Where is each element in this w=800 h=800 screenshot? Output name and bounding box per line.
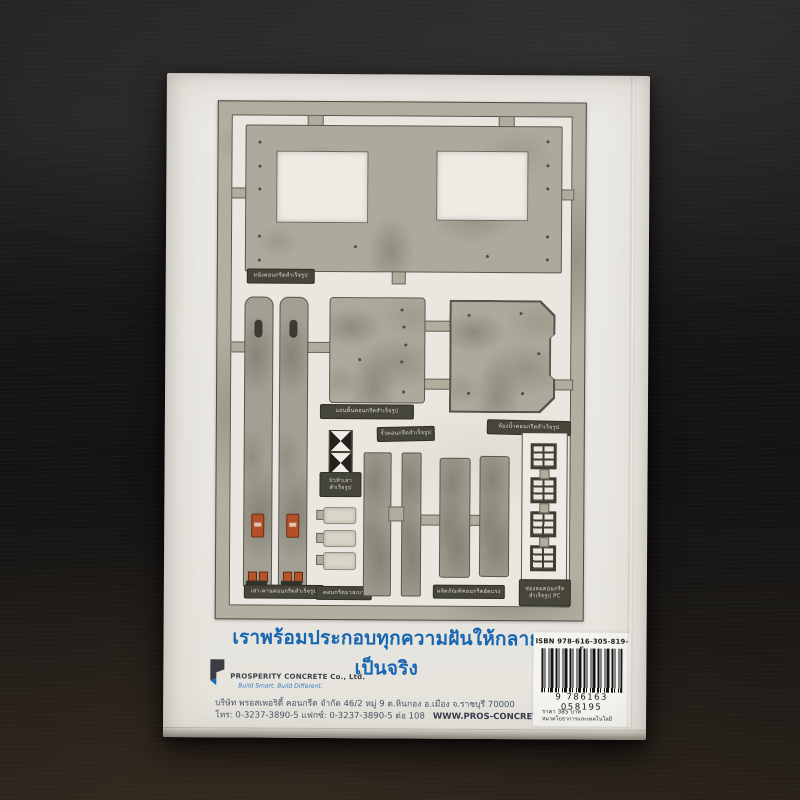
lightweight-block [323,507,356,524]
sprue-tab [388,506,404,521]
isbn-box: ISBN 978-616-305-819-5 9 786163 058195 ร… [533,632,631,727]
precast-floor-slab [329,297,426,404]
column-cap-piece [329,430,353,452]
vent-block [530,545,556,571]
vent-block [531,443,557,469]
precast-bathroom-panel [449,300,556,414]
company-name: PROSPERITY CONCRETE Co., Ltd. [230,672,365,681]
sprue-tab [423,379,451,390]
papercraft-sprue-frame: ผนังคอนกรีตสำเร็จรูป เสา-คานคอนกรีตสำเร็… [215,100,587,621]
fence-strip [401,452,422,596]
company-phone: โทร: 0-3237-3890-5 แฟกซ์: 0-3237-3890-5 … [215,707,425,722]
sprue-tab [307,342,331,353]
prestressed-slab [479,456,510,577]
lightweight-block [323,552,356,570]
fence-strip [363,452,392,596]
sprue-tab [540,469,550,479]
prosperity-concrete-logo-icon [207,657,227,685]
label-fence: รั้วคอนกรีตสำเร็จรูป [378,427,434,441]
precast-column [243,296,274,587]
prestressed-slab [439,458,471,578]
lightweight-block [323,530,356,547]
vent-block-strip [521,433,568,579]
vent-block [530,511,556,537]
label-column-beam: เสา-คานคอนกรีตสำเร็จรูป [245,585,323,597]
company-tagline: Build Smart, Build Different. [238,682,322,690]
label-floor-plank: แผ่นพื้นคอนกรีตสำเร็จรูป [321,405,413,419]
sprue-tab [539,503,549,513]
sprue-tab [420,515,441,526]
sprue-tab [554,379,573,390]
page-edges-right [627,76,636,740]
papercraft-sheet: ผนังคอนกรีตสำเร็จรูป เสา-คานคอนกรีตสำเร็… [229,114,573,607]
window-opening [436,151,528,222]
label-precast-wall: ผนังคอนกรีตสำเร็จรูป [248,269,314,282]
company-contact-line: โทร: 0-3237-3890-5 แฟกซ์: 0-3237-3890-5 … [215,707,569,723]
sprue-tab [423,321,451,332]
barcode [541,648,622,692]
label-prestressed: ผลิตภัณฑ์คอนกรีตอัดแรง [434,586,504,598]
vent-block [530,477,556,503]
label-column-cap: บัวหัวเสา สำเร็จรูป [320,473,360,496]
precast-wall-panel [245,124,563,273]
book-back-cover: ผนังคอนกรีตสำเร็จรูป เสา-คานคอนกรีตสำเร็… [163,73,650,740]
column-cap-piece [329,452,353,474]
window-opening [276,151,368,224]
sprue-tab [539,537,549,547]
label-vent-block: ช่องลมคอนกรีต สำเร็จรูป PC [520,580,570,605]
precast-column [278,297,309,588]
category-text: หมวดโยธาการและเทคโนโลยี [542,715,612,723]
